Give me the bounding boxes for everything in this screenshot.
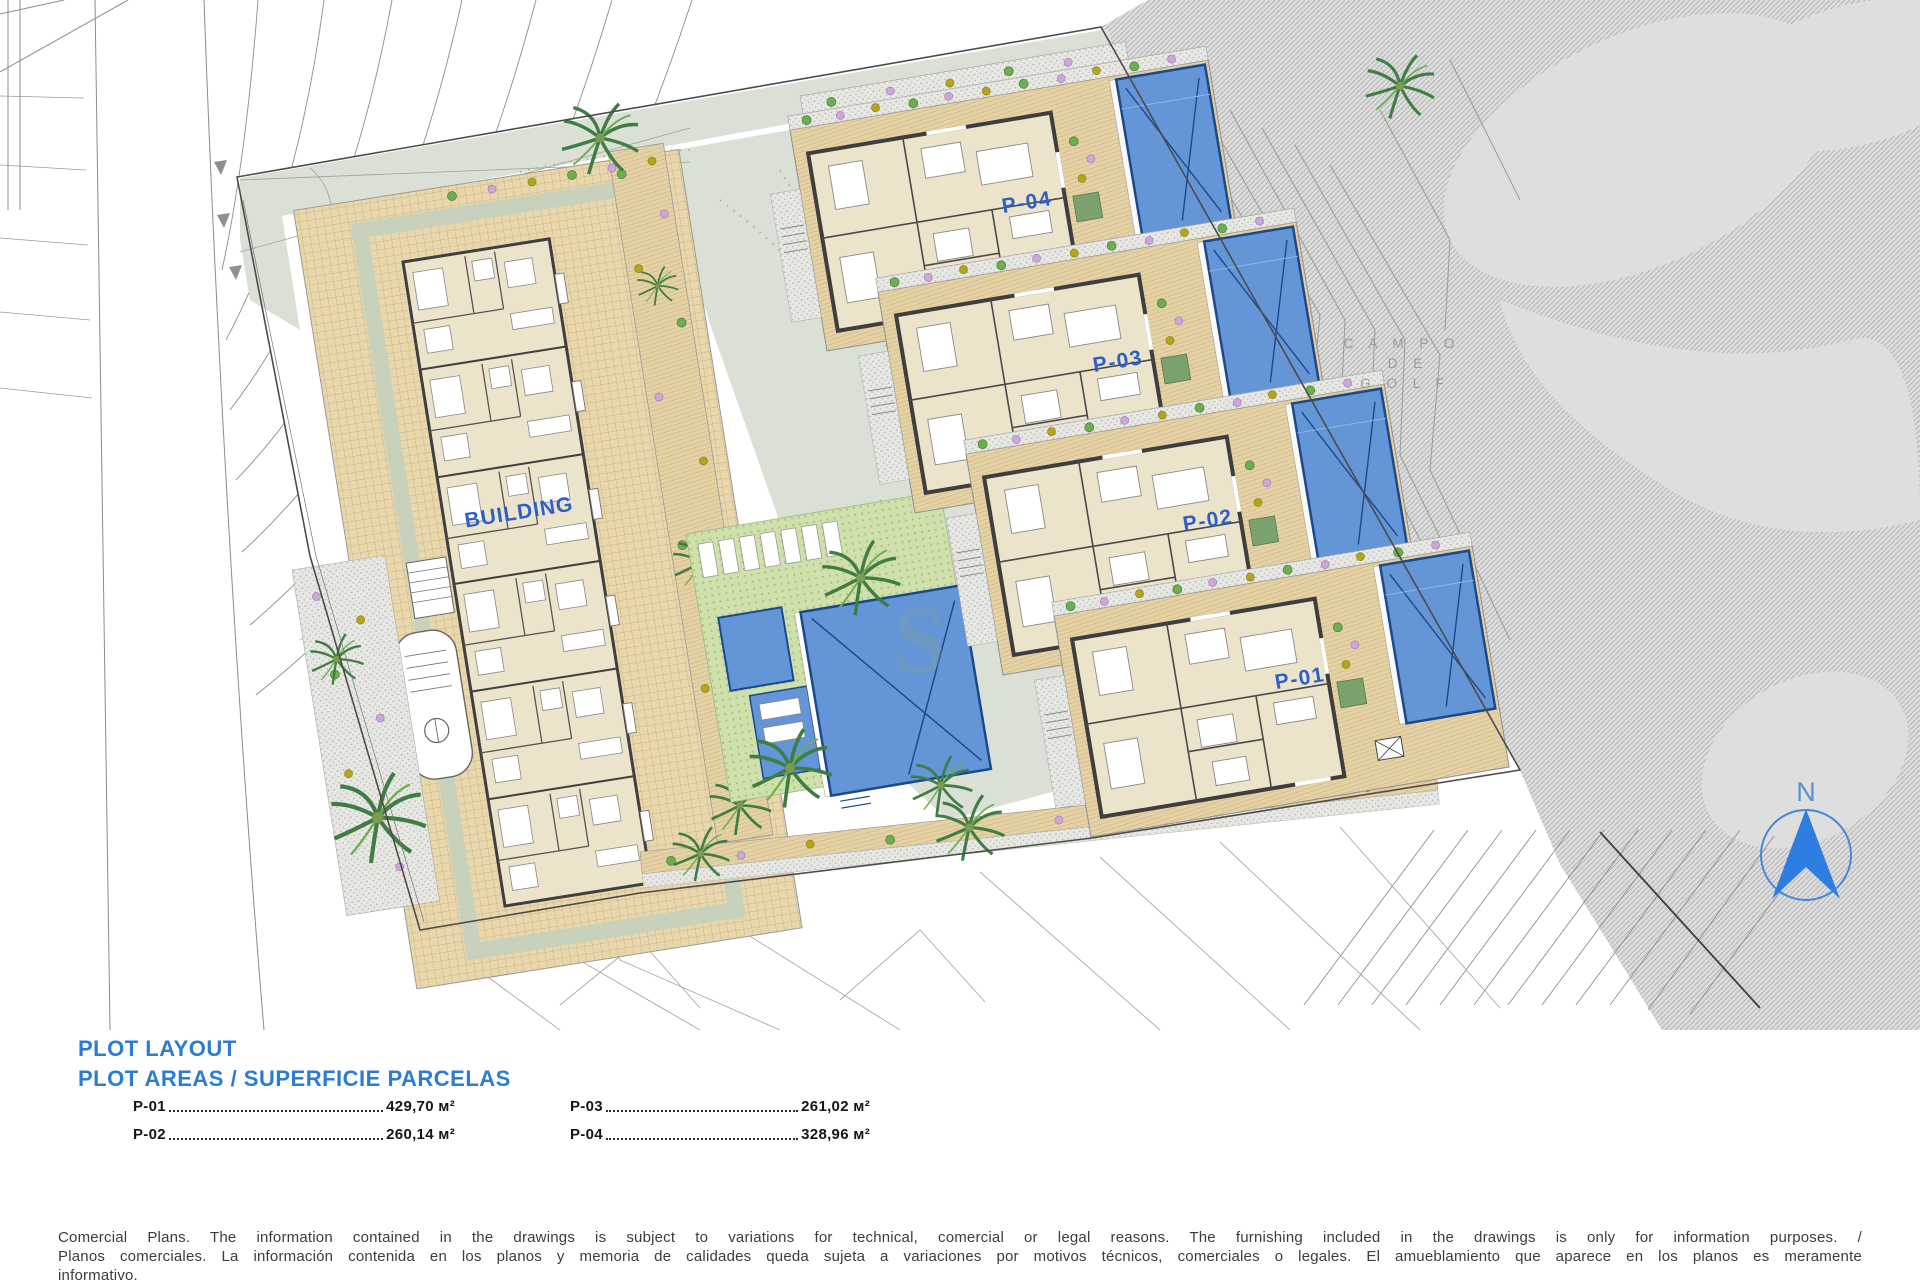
dot-leader: [606, 1137, 798, 1140]
dot-leader: [169, 1137, 383, 1140]
legend-title: PLOT LAYOUT: [78, 1036, 237, 1062]
watermark: S: [893, 586, 946, 693]
plot-area-row-p02: P-02 260,14 м²: [133, 1126, 455, 1143]
small-pool: [718, 607, 793, 691]
plot-area-row-p01: P-01 429,70 м²: [133, 1098, 455, 1115]
plot-area-value: 429,70 м²: [386, 1098, 455, 1115]
plot-id: P-02: [133, 1126, 166, 1143]
disclaimer: Comercial Plans. The information contain…: [58, 1228, 1862, 1280]
disclaimer-line-es: Planos comerciales. La información conte…: [58, 1247, 1862, 1266]
golf-label-line1: C A M P O: [1344, 336, 1461, 351]
north-label: N: [1796, 777, 1816, 807]
plot-area-value: 328,96 м²: [801, 1126, 870, 1143]
disclaimer-line-3: informativo.: [58, 1266, 1862, 1280]
golf-label-line2: D E: [1388, 356, 1429, 371]
site-plan-page: BUILDING P-04 P-03 P-02 P-01 C A M P O D…: [0, 0, 1920, 1280]
plot-area-row-p04: P-04 328,96 м²: [570, 1126, 870, 1143]
plot-area-value: 261,02 м²: [801, 1098, 870, 1115]
entry-stairs: [406, 557, 454, 619]
plot-area-row-p03: P-03 261,02 м²: [570, 1098, 870, 1115]
legend-subtitle: PLOT AREAS / SUPERFICIE PARCELAS: [78, 1066, 511, 1092]
plot-id: P-03: [570, 1098, 603, 1115]
disclaimer-line-en: Comercial Plans. The information contain…: [58, 1228, 1862, 1247]
site-plan-drawing: BUILDING P-04 P-03 P-02 P-01 C A M P O D…: [0, 0, 1920, 1030]
plot-id: P-04: [570, 1126, 603, 1143]
golf-label-line3: G O L F: [1360, 376, 1450, 391]
dot-leader: [169, 1109, 383, 1112]
plot-area-value: 260,14 м²: [386, 1126, 455, 1143]
plot-id: P-01: [133, 1098, 166, 1115]
dot-leader: [606, 1109, 798, 1112]
